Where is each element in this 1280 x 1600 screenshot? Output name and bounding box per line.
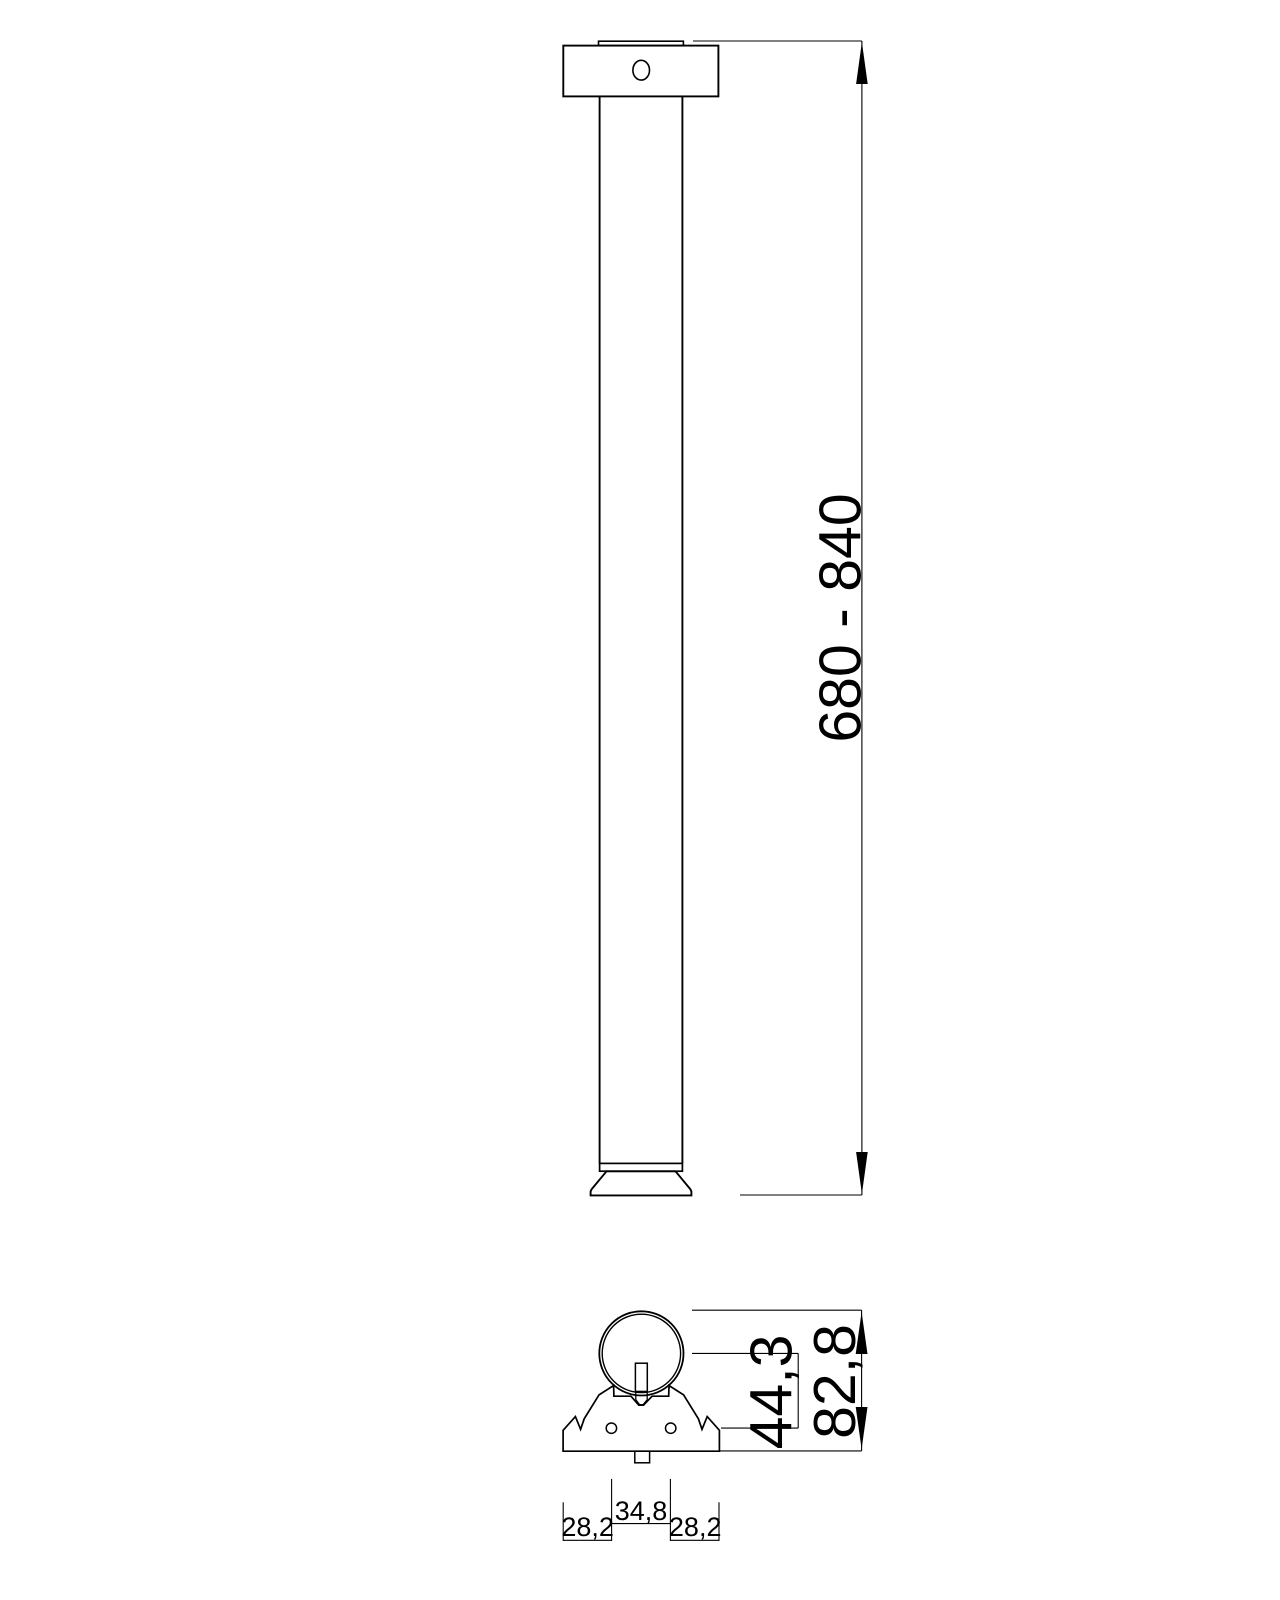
svg-text:44,3: 44,3 [739,1335,805,1450]
svg-text:82,8: 82,8 [802,1324,868,1439]
svg-text:34,8: 34,8 [615,1496,668,1526]
svg-text:680 - 840: 680 - 840 [808,493,874,742]
svg-text:28,2: 28,2 [561,1512,614,1542]
svg-text:28,2: 28,2 [669,1512,722,1542]
